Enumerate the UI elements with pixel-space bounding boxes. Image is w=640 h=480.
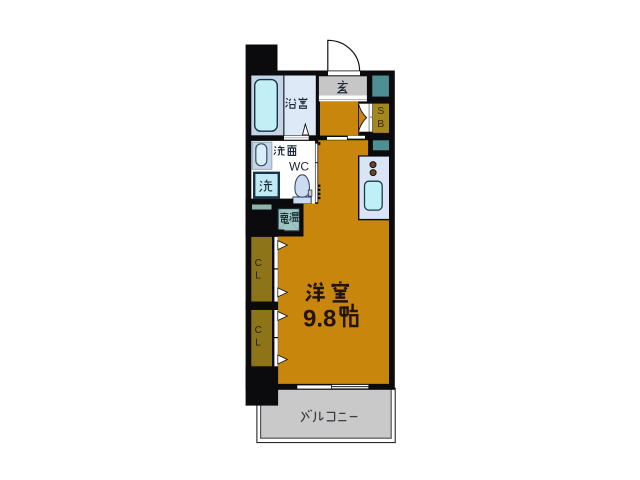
svg-text:C: C: [255, 258, 262, 269]
svg-text:S: S: [377, 105, 384, 117]
svg-text:9.8: 9.8: [303, 305, 336, 332]
svg-text:B: B: [377, 118, 384, 130]
svg-text:C: C: [255, 325, 262, 336]
svg-text:L: L: [255, 271, 261, 282]
svg-text:WC: WC: [289, 160, 309, 174]
svg-text:L: L: [255, 338, 261, 349]
